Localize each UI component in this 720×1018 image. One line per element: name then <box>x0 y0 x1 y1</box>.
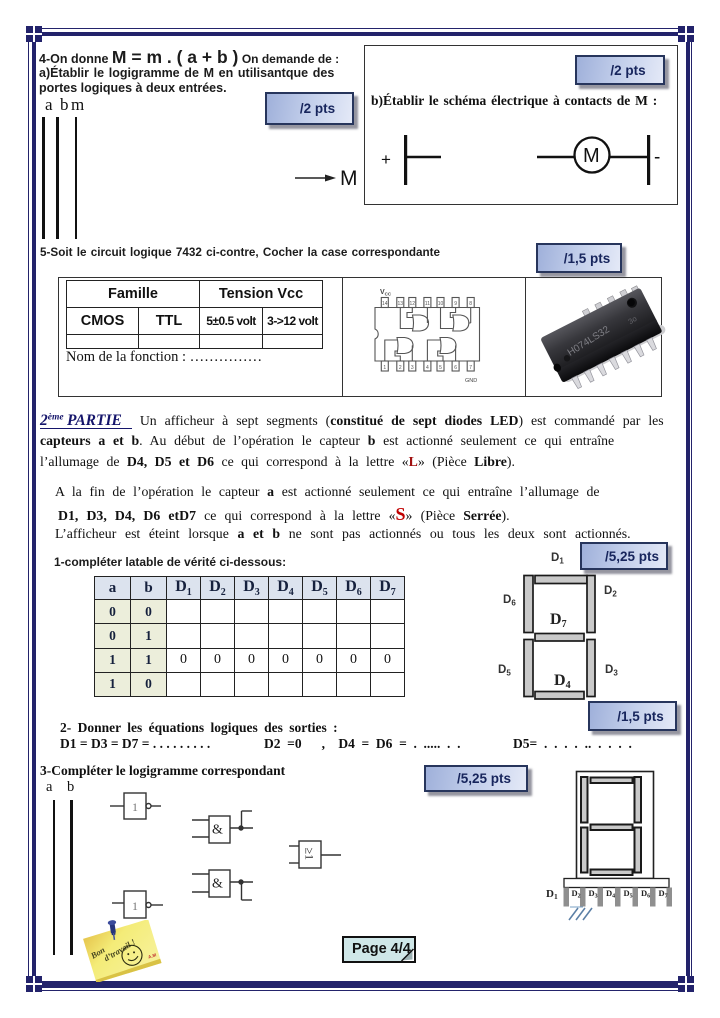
svg-text:D4: D4 <box>606 888 615 900</box>
svg-text:11: 11 <box>425 301 430 307</box>
svg-text:GND: GND <box>465 378 477 384</box>
svg-text:≥1: ≥1 <box>303 848 317 861</box>
svg-text:D1: D1 <box>546 888 558 901</box>
svg-text:-: - <box>654 147 660 168</box>
svg-text:8: 8 <box>469 301 472 307</box>
svg-text:+: + <box>381 150 391 169</box>
svg-text:1: 1 <box>383 365 386 371</box>
svg-text:14: 14 <box>382 301 388 307</box>
svg-text:D6: D6 <box>641 888 650 900</box>
svg-text:D7: D7 <box>659 888 668 900</box>
svg-text:5: 5 <box>439 365 442 371</box>
svg-text:D7: D7 <box>550 611 567 630</box>
svg-text:D3: D3 <box>589 888 598 900</box>
svg-text:&: & <box>212 823 223 838</box>
svg-text:D5: D5 <box>624 888 633 900</box>
svg-text:10: 10 <box>438 301 444 307</box>
svg-text:D1: D1 <box>551 552 564 566</box>
svg-text:D3: D3 <box>605 664 618 678</box>
svg-text:&: & <box>212 877 223 892</box>
svg-text:2: 2 <box>399 365 402 371</box>
svg-text:D5: D5 <box>498 664 511 678</box>
svg-text:13: 13 <box>398 301 404 307</box>
svg-text:D2: D2 <box>572 888 581 900</box>
svg-text:9: 9 <box>454 301 457 307</box>
svg-text:D4: D4 <box>554 672 571 691</box>
svg-text:1: 1 <box>132 899 138 913</box>
svg-text:12: 12 <box>410 301 416 307</box>
svg-text:4: 4 <box>426 365 429 371</box>
svg-text:3: 3 <box>411 365 414 371</box>
svg-text:M: M <box>583 145 600 167</box>
svg-text:VCC: VCC <box>380 289 392 297</box>
svg-text:6: 6 <box>454 365 457 371</box>
svg-text:7: 7 <box>469 365 472 371</box>
svg-text:D6: D6 <box>503 594 516 608</box>
svg-text:1: 1 <box>132 800 138 814</box>
svg-text:M: M <box>340 167 358 190</box>
svg-text:D2: D2 <box>604 585 617 599</box>
